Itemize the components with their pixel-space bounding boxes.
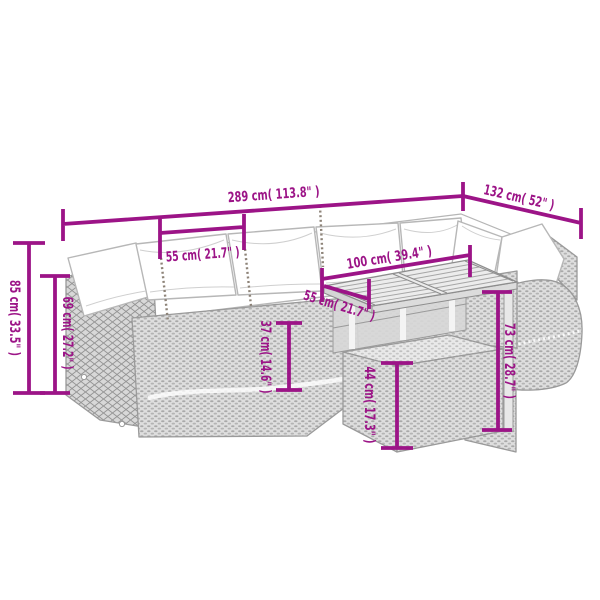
dim-table-height-label: 73 cm( 28.7" ) — [501, 323, 517, 399]
rivet-1 — [81, 374, 86, 379]
dim-ottoman-height-label: 44 cm( 17.3" ) — [361, 367, 377, 444]
dim-seat-height-label: 37 cm( 14.6" ) — [257, 321, 273, 394]
dim-backrest-height-label: 69 cm( 27.2" ) — [59, 297, 75, 370]
product-dimension-image: 289 cm( 113.8" ) 132 cm( 52" ) 55 cm( 21… — [0, 0, 600, 600]
rivet-2 — [119, 421, 124, 426]
sofa-front-base — [132, 297, 360, 437]
furniture-diagram: 289 cm( 113.8" ) 132 cm( 52" ) 55 cm( 21… — [0, 0, 600, 600]
back-cushion-2 — [136, 234, 236, 300]
dim-total-length-label: 289 cm( 113.8" ) — [227, 184, 320, 206]
dim-total-height-label: 85 cm( 33.5" ) — [6, 280, 22, 356]
